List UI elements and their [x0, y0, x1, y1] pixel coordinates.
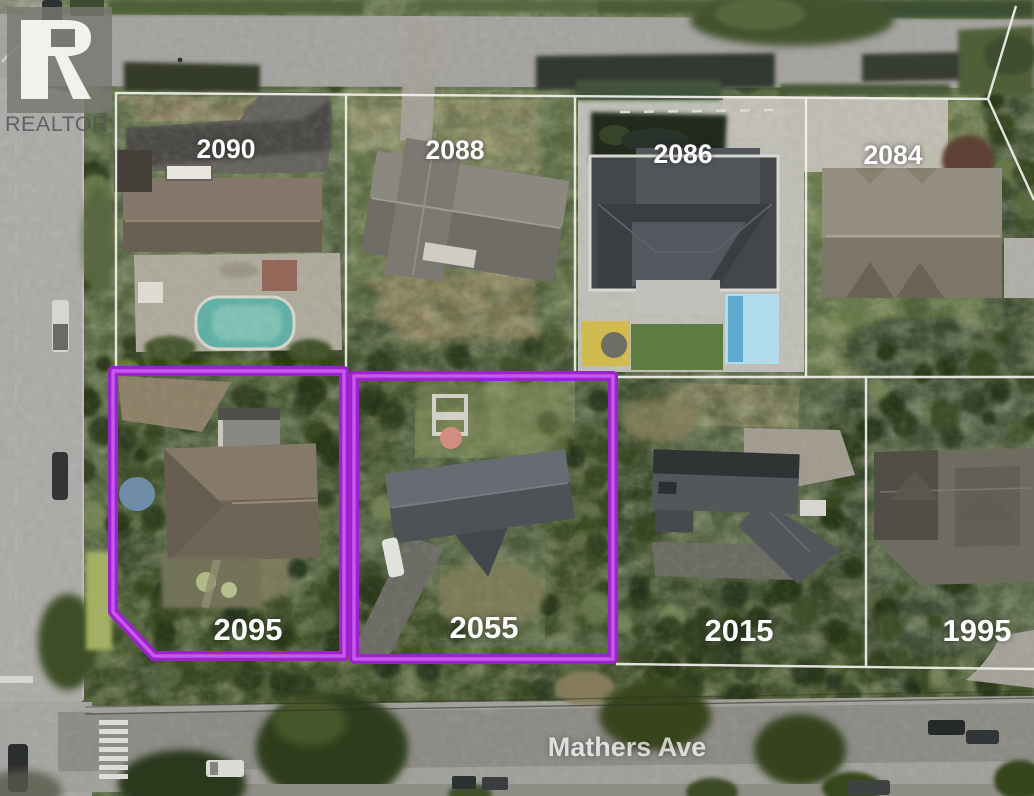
svg-text:2095: 2095: [214, 612, 283, 647]
svg-text:2090: 2090: [197, 134, 256, 164]
svg-text:2084: 2084: [864, 140, 923, 170]
svg-text:Mathers Ave: Mathers Ave: [548, 732, 707, 762]
svg-text:2055: 2055: [450, 610, 519, 645]
svg-text:2015: 2015: [705, 613, 774, 648]
svg-text:REALTOR: REALTOR: [5, 112, 108, 136]
svg-text:2088: 2088: [426, 135, 485, 165]
svg-text:®: ®: [101, 110, 108, 120]
svg-text:1995: 1995: [943, 613, 1012, 648]
svg-text:2086: 2086: [654, 139, 713, 169]
